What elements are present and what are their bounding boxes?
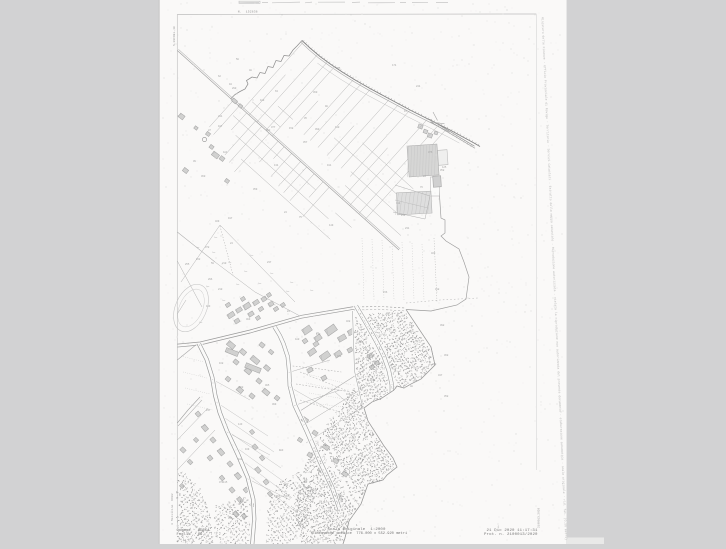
svg-text:Dimensione cornice 776.000 x: Dimensione cornice 776.000 x 552.920 met…: [312, 531, 408, 536]
svg-text:N. 152636: N. 152636: [238, 10, 258, 13]
svg-text:3 Malvicini 6982: 3 Malvicini 6982: [170, 493, 174, 525]
svg-text:Prot. n. 2100013/2020: Prot. n. 2100013/2020: [484, 532, 538, 537]
svg-text:S.03FREL-10: S.03FREL-10: [173, 26, 176, 46]
svg-text:2100013.2020: 2100013.2020: [538, 508, 541, 528]
